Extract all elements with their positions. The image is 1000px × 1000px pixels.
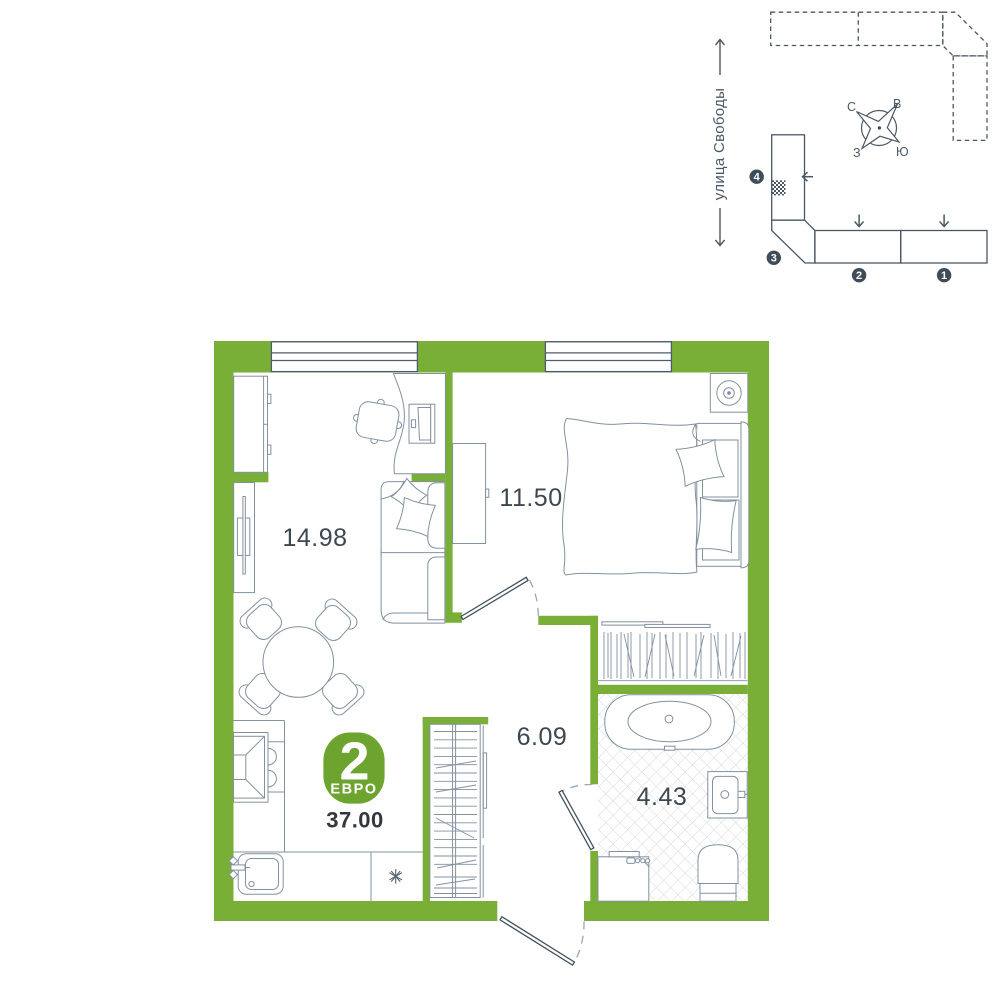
svg-text:4: 4 <box>754 172 761 184</box>
svg-text:улица Свободы: улица Свободы <box>711 88 728 200</box>
svg-text:37.00: 37.00 <box>326 808 384 833</box>
svg-text:1: 1 <box>941 270 947 282</box>
svg-text:Ю: Ю <box>896 145 909 159</box>
svg-text:2: 2 <box>856 270 862 282</box>
svg-text:14.98: 14.98 <box>282 524 347 552</box>
svg-text:З: З <box>853 146 861 160</box>
svg-text:3: 3 <box>771 253 777 265</box>
svg-text:В: В <box>893 97 901 111</box>
svg-text:ЕВРО: ЕВРО <box>330 782 377 798</box>
svg-text:С: С <box>847 100 856 114</box>
svg-text:11.50: 11.50 <box>499 484 562 512</box>
svg-text:4.43: 4.43 <box>637 783 688 811</box>
svg-text:6.09: 6.09 <box>517 723 568 751</box>
